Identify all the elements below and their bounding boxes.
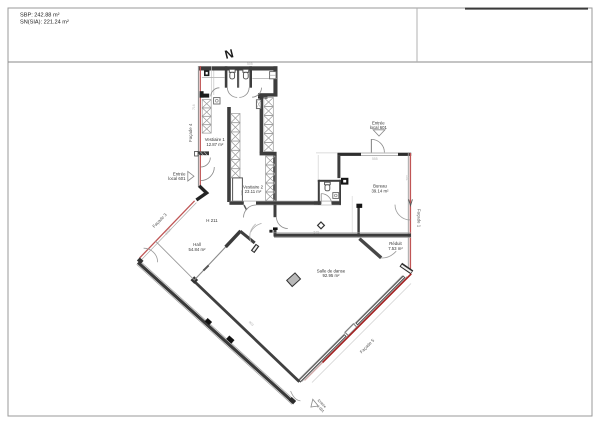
svg-text:local 601: local 601 [168,176,186,181]
svg-text:SBP: 242.88 m²: SBP: 242.88 m² [20,13,60,19]
svg-text:23.11 m²: 23.11 m² [245,189,262,194]
svg-text:151: 151 [405,175,409,181]
svg-text:716: 716 [192,104,196,110]
svg-text:Façade 1: Façade 1 [416,209,421,228]
svg-text:505: 505 [247,62,253,66]
svg-text:7.53 m²: 7.53 m² [388,246,403,251]
svg-text:12.87 m²: 12.87 m² [206,142,224,147]
svg-text:SN(SIA): 221.24 m²: SN(SIA): 221.24 m² [20,20,69,26]
svg-text:92.95 m²: 92.95 m² [323,273,341,278]
svg-text:Façade 4: Façade 4 [188,123,193,142]
svg-text:555: 555 [372,157,378,161]
svg-text:arm.: arm. [240,189,244,195]
svg-text:local 601: local 601 [370,125,388,130]
svg-text:575: 575 [314,230,320,234]
svg-text:39.14 m²: 39.14 m² [372,188,390,193]
svg-text:H 211: H 211 [206,218,218,223]
svg-text:54.84 m²: 54.84 m² [189,247,207,252]
